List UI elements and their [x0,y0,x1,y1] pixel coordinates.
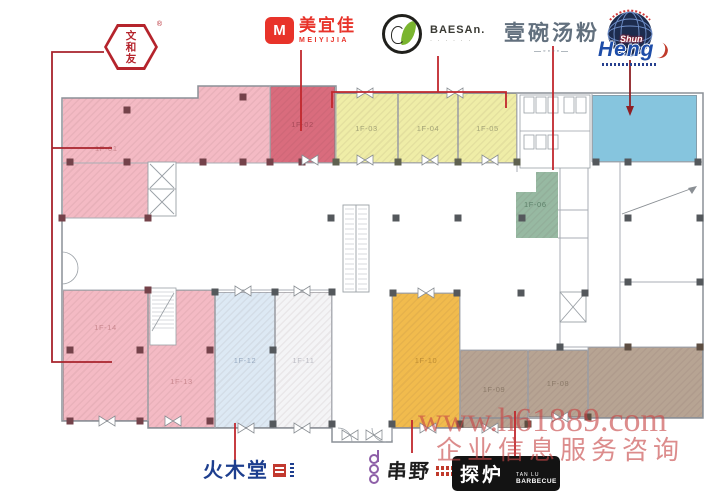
unit-label: 1F-14 [94,323,117,332]
unit-label: 1F-09 [483,385,506,394]
logo-wenheyou: 文和友 ® [104,24,158,70]
unit-1f-02: 1F-02 [270,86,335,163]
baesan-tagline: · · · · · · [430,38,485,44]
stair-area-label: 20m² [152,334,169,341]
unit-label: 1F-03 [355,124,378,133]
watermark-caption: 企业信息服务咨询 [436,430,684,467]
unit-label: 1F-05 [476,124,499,133]
unit-label: 1F-04 [417,124,440,133]
meiyijia-chinese: 美宜佳 [299,17,356,34]
unit-label: 1F-08 [547,379,570,388]
unit-1f-01: 1F-01 [63,86,270,218]
logo-baesan: BAESAn. · · · · · · [382,14,485,54]
unit-1f-11: 1F-11 [275,292,332,428]
unit-label: 1F-01 [95,144,118,153]
unit-1f-14: 1F-14 [63,290,148,421]
unit-label: 1F-12 [234,356,257,365]
wenheyou-name: 文和友 [124,30,139,65]
unit-label: 1F-11 [292,356,314,365]
logo-yiwantangfen: 壹碗汤粉 —◦◦◦◦— [504,17,600,55]
logo-meiyijia: M 美宜佳 MEIYIJIA [265,17,356,44]
unit-1f-03: 1F-03 [335,93,398,163]
unit-1f-13: 1F-13 [148,290,215,428]
huomutang-name: 火木堂 [203,461,269,481]
unit-1f-05: 1F-05 [458,93,517,163]
tanlu-latin-bottom: BARBECUE [516,478,557,485]
huomutang-seal-icon [273,464,286,477]
meiyijia-latin: MEIYIJIA [299,37,356,44]
shunheng-tagline-strip [602,63,656,66]
baesan-leaf-face-icon [382,14,422,54]
logo-huomutang: 火木堂 [203,461,294,481]
shunheng-line2: Heng [598,38,655,62]
unit-label: 1F-02 [291,120,314,129]
baesan-latin: BAESAn. [430,24,485,36]
wenheyou-hexagon-icon: 文和友 [104,24,158,70]
unit-blue-topright [592,95,697,162]
unit-1f-06: 1F-06 [516,172,558,238]
yiwantangfen-decor: —◦◦◦◦— [504,48,600,55]
logo-shunheng: Shun Heng [598,8,668,70]
meiyijia-house-icon: M [265,17,294,44]
unit-label: 1F-06 [524,200,547,209]
unit-1f-12: 1F-12 [215,292,275,428]
registered-mark: ® [157,21,162,28]
chuanye-skewer-icon [366,450,382,488]
chuanye-name: 串野 [386,455,432,484]
yiwantangfen-name: 壹碗汤粉 [504,17,600,47]
unit-label: 1F-10 [415,356,438,365]
unit-1f-04: 1F-04 [398,93,458,163]
unit-label: 1F-13 [170,377,193,386]
huomutang-side-text [290,463,294,479]
floorplan-page: 1F-01 1F-02 1F-03 1F-04 1F-05 1F-06 1F-1… [0,0,720,500]
